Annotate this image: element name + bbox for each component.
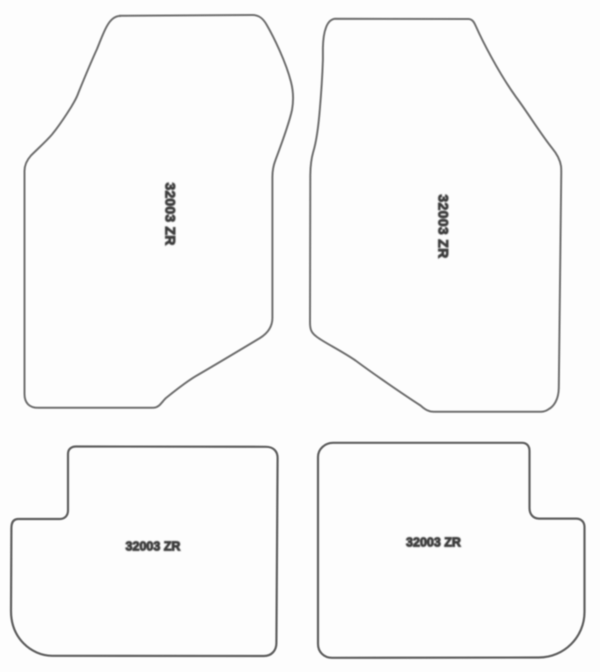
svg-text:32003 ZR: 32003 ZR <box>406 536 461 550</box>
svg-text:32003 ZR: 32003 ZR <box>126 540 181 554</box>
svg-text:32003 ZR: 32003 ZR <box>163 182 179 245</box>
svg-text:32003 ZR: 32003 ZR <box>436 194 452 258</box>
